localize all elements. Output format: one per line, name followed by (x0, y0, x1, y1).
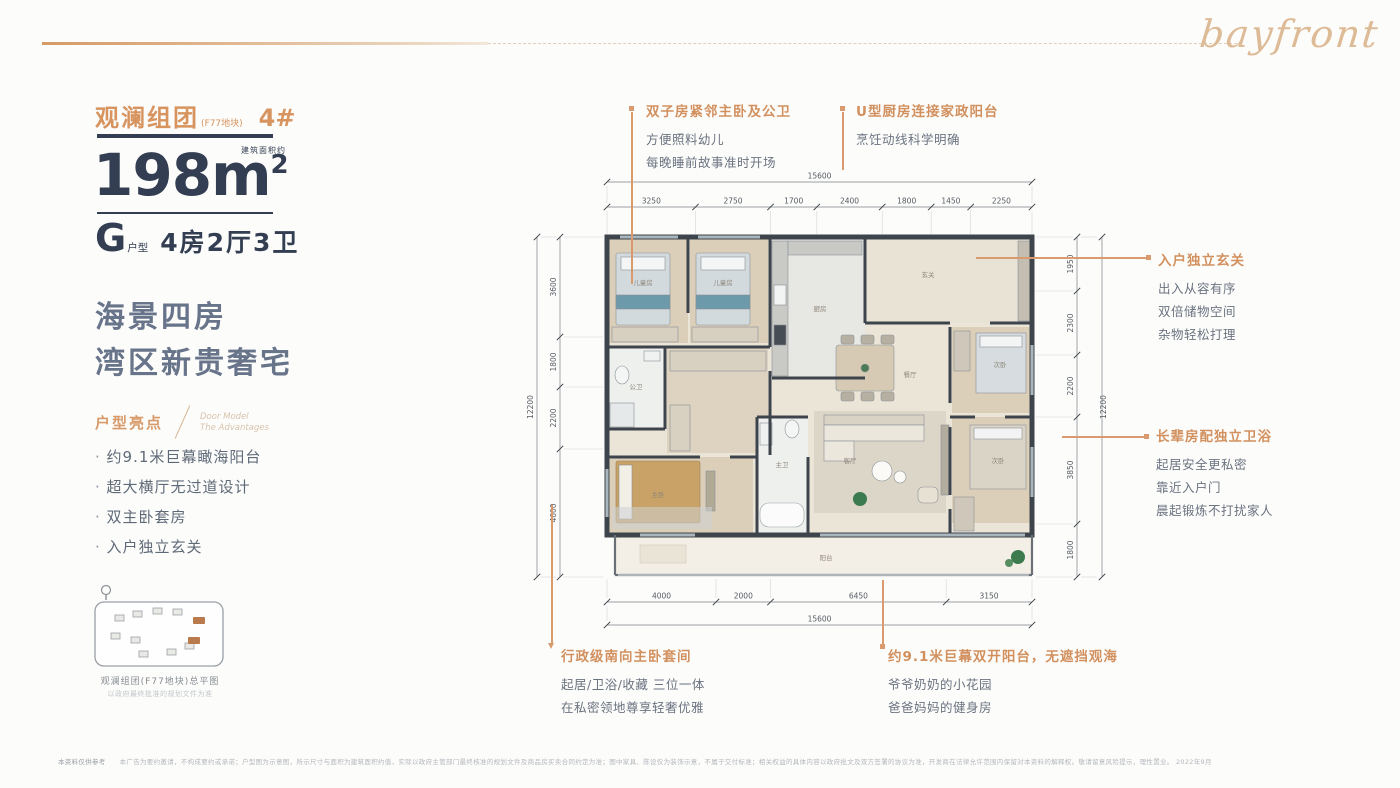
north-pin-icon (102, 586, 111, 601)
callout-line: 靠近入户门 (1156, 476, 1273, 499)
leader-line-elder (1062, 436, 1146, 438)
callout-line: 每晚睡前故事准时开场 (646, 151, 791, 174)
callout-line: 烹饪动线科学明确 (856, 128, 998, 151)
slogan: 海景四房 湾区新贵奢宅 (95, 295, 293, 387)
dim: 4000 (652, 592, 671, 601)
dim: 2000 (734, 592, 753, 601)
leader-dot (1144, 434, 1149, 439)
site-plan-note: 以政府最终批准的规划文件为准 (85, 689, 235, 699)
callout-line: 爸爸妈妈的健身房 (888, 696, 1118, 719)
callout-body: 爷爷奶奶的小花园 爸爸妈妈的健身房 (888, 673, 1118, 719)
unit-type-row: G 户型 4房2厅3卫 (95, 216, 299, 260)
title-underline (97, 134, 273, 138)
slogan-line-1: 海景四房 (95, 295, 293, 341)
footer-text: 本广告为要约邀请，不构成要约或承诺；户型图为示意图，所示尺寸与面积为建筑面积约值… (120, 758, 1212, 766)
room-label: 客厅 (844, 456, 858, 465)
leader-dot (629, 106, 634, 111)
callout-body: 方便照料幼儿 每晚睡前故事准时开场 (646, 128, 791, 174)
group-title-row: 观澜组团 (F77地块) 4# (95, 98, 295, 133)
dim: 6450 (849, 592, 868, 601)
leader-dot (840, 106, 845, 111)
highlights-en-2: The Advantages (200, 423, 269, 434)
callout-line: 晨起锻炼不打扰家人 (1156, 499, 1273, 522)
dim-bottom-total: 15600 (808, 615, 832, 624)
dim: 1800 (549, 352, 558, 371)
dim: 1800 (1066, 540, 1075, 559)
callout-line: 起居/卫浴/收藏 三位一体 (561, 673, 705, 696)
dim: 1450 (941, 197, 960, 206)
callout-line: 爷爷奶奶的小花园 (888, 673, 1118, 696)
room-label: 儿童房 (713, 278, 733, 287)
site-plan-caption: 观澜组团(F77地块)总平图 (85, 674, 235, 687)
callout-line: 杂物轻松打理 (1158, 323, 1245, 346)
highlight-item: 双主卧套房 (95, 508, 261, 526)
callout-elder: 长辈房配独立卫浴 起居安全更私密 靠近入户门 晨起锻炼不打扰家人 (1156, 425, 1273, 522)
area-divider (97, 212, 273, 214)
leader-line-master (551, 505, 553, 643)
room-label: 次卧 (992, 456, 1006, 465)
room-label: 公卫 (630, 383, 644, 391)
header-hairline (488, 43, 1242, 44)
dim: 2400 (840, 197, 859, 206)
dim: 2750 (723, 197, 742, 206)
dim-top-total: 15600 (808, 172, 832, 181)
highlight-item: 超大横厅无过道设计 (95, 478, 261, 496)
callout-line: 双倍储物空间 (1158, 300, 1245, 323)
dim: 2200 (549, 408, 558, 427)
leader-dot (880, 644, 885, 649)
dim: 2300 (1066, 313, 1075, 332)
dim: 1800 (897, 197, 916, 206)
callout-body: 起居安全更私密 靠近入户门 晨起锻炼不打扰家人 (1156, 453, 1273, 522)
floor-plan: 儿童房 儿童房 公卫 厨房 玄关 餐厅 客厅 主卧 主卫 次卧 次卧 阳台 15… (520, 165, 1140, 645)
highlights-list: 约9.1米巨幕瞰海阳台 超大横厅无过道设计 双主卧套房 入户独立玄关 (95, 448, 261, 568)
callout-kitchen: U型厨房连接家政阳台 烹饪动线科学明确 (856, 100, 998, 151)
leader-arrow (548, 643, 554, 649)
brand-logo-script: bayfront (1198, 12, 1378, 56)
callout-foyer: 入户独立玄关 出入从容有序 双倍储物空间 杂物轻松打理 (1158, 249, 1245, 346)
highlight-item: 约9.1米巨幕瞰海阳台 (95, 448, 261, 466)
area-figure: 198m2 建筑面积约 (93, 144, 289, 208)
room-label: 儿童房 (633, 278, 653, 287)
callout-line: 方便照料幼儿 (646, 128, 791, 151)
room-label: 厨房 (814, 304, 827, 313)
callout-title: 双子房紧邻主卧及公卫 (646, 100, 791, 120)
building-number: 4# (259, 104, 296, 132)
dim: 3150 (979, 592, 998, 601)
dim: 2200 (1066, 376, 1075, 395)
highlights-slash (175, 405, 191, 438)
group-title: 观澜组团 (95, 98, 199, 133)
area-note: 建筑面积约 (241, 145, 286, 156)
callout-title: 入户独立玄关 (1158, 249, 1245, 269)
dim-right-total: 12200 (1099, 395, 1108, 419)
header-accent-line (42, 42, 488, 45)
footer-prefix: 本资料仅供参考 (58, 758, 106, 766)
room-label: 主卫 (776, 460, 790, 469)
group-parcel: (F77地块) (201, 116, 243, 129)
highlights-title: 户型亮点 (95, 412, 163, 433)
callout-line: 起居安全更私密 (1156, 453, 1273, 476)
leader-line-foyer (976, 257, 1146, 259)
type-letter-label: 户型 (127, 240, 148, 255)
room-label: 玄关 (922, 270, 936, 279)
dim: 3250 (642, 197, 661, 206)
callout-title: 行政级南向主卧套间 (561, 645, 705, 665)
footer-disclaimer: 本资料仅供参考本广告为要约邀请，不构成要约或承诺；户型图为示意图，所示尺寸与面积… (58, 756, 1350, 766)
page: { "brand": { "logo": "bayfront" }, "left… (0, 0, 1400, 788)
callout-title: 约9.1米巨幕双开阳台，无遮挡观海 (888, 645, 1118, 665)
callout-title: U型厨房连接家政阳台 (856, 100, 998, 120)
room-label: 阳台 (820, 553, 833, 562)
callout-master: 行政级南向主卧套间 起居/卫浴/收藏 三位一体 在私密领地尊享轻奢优雅 (561, 645, 705, 719)
highlights-subtitle-en: Door Model The Advantages (200, 412, 269, 434)
room-label: 主卧 (652, 490, 666, 499)
dim: 1700 (784, 197, 803, 206)
callout-body: 起居/卫浴/收藏 三位一体 在私密领地尊享轻奢优雅 (561, 673, 705, 719)
area-value: 198 (93, 141, 211, 209)
leader-dot (1146, 255, 1151, 260)
leader-line-balcony (882, 580, 884, 644)
dim: 3600 (549, 277, 558, 296)
dim: 2250 (992, 197, 1011, 206)
dim: 3850 (1066, 460, 1075, 479)
callout-line: 在私密领地尊享轻奢优雅 (561, 696, 705, 719)
slogan-line-2: 湾区新贵奢宅 (95, 341, 293, 387)
dim-left-total: 12200 (526, 395, 535, 419)
callout-body: 出入从容有序 双倍储物空间 杂物轻松打理 (1158, 277, 1245, 346)
leader-line-kitchen (842, 112, 844, 170)
highlight-item: 入户独立玄关 (95, 538, 261, 556)
callout-twins: 双子房紧邻主卧及公卫 方便照料幼儿 每晚睡前故事准时开场 (646, 100, 791, 174)
type-letter: G (95, 216, 126, 260)
type-description: 4房2厅3卫 (160, 223, 299, 259)
site-plan-map (85, 582, 235, 672)
callout-line: 出入从容有序 (1158, 277, 1245, 300)
leader-line-twins (631, 112, 633, 284)
callout-title: 长辈房配独立卫浴 (1156, 425, 1273, 445)
highlights-en-1: Door Model (200, 412, 269, 423)
callout-body: 烹饪动线科学明确 (856, 128, 998, 151)
room-label: 餐厅 (904, 370, 918, 379)
room-label: 次卧 (994, 360, 1008, 369)
callout-balcony: 约9.1米巨幕双开阳台，无遮挡观海 爷爷奶奶的小花园 爸爸妈妈的健身房 (888, 645, 1118, 719)
